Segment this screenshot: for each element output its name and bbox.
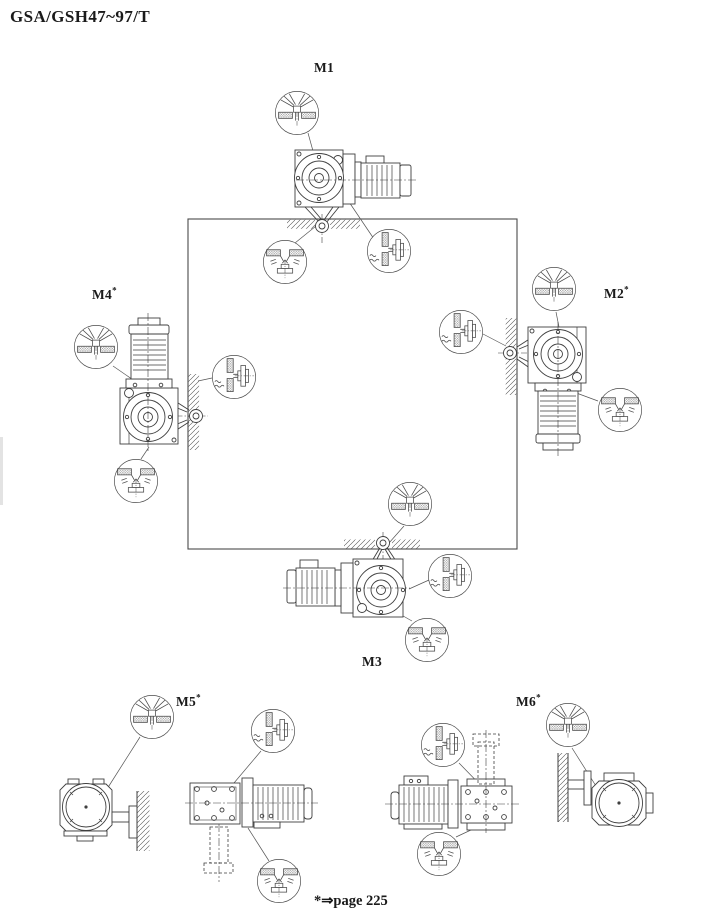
- vent-plug-icon-m2: [532, 267, 575, 310]
- gearmotor-m5-top-view: [185, 778, 318, 882]
- level-plug-icon-m5: [251, 709, 294, 752]
- drain-plug-icon-m2: [598, 388, 641, 431]
- gearmotor-m6-rear-view: [558, 753, 653, 827]
- level-plug-icon-m6: [421, 723, 464, 766]
- level-plug-icon-m2: [439, 310, 482, 353]
- plug-detail-circles: [74, 91, 641, 902]
- leader-lines: [107, 133, 598, 861]
- mounting-positions-diagram: [0, 0, 708, 910]
- vent-plug-icon-m3: [388, 482, 431, 525]
- drain-plug-icon-m6: [417, 832, 460, 875]
- gearmotor-m5-rear-view: [60, 779, 150, 851]
- vent-plug-icon-m4: [74, 325, 117, 368]
- drain-plug-icon-m4: [114, 459, 157, 502]
- level-plug-icon-m4: [212, 355, 255, 398]
- catalog-page: GSA/GSH47~97/T M1 M2* M3 M4* M5* M6* *⇒p…: [0, 0, 708, 910]
- level-plug-icon-m1: [367, 229, 410, 272]
- drain-plug-icon-m3: [405, 618, 448, 661]
- vent-plug-icon-m1: [275, 91, 318, 134]
- vent-plug-icon-m6: [546, 703, 589, 746]
- vent-plug-icon-m5: [130, 695, 173, 738]
- drain-plug-icon-m5: [257, 859, 300, 902]
- level-plug-icon-m3: [428, 554, 471, 597]
- drain-plug-icon-m1: [263, 240, 306, 283]
